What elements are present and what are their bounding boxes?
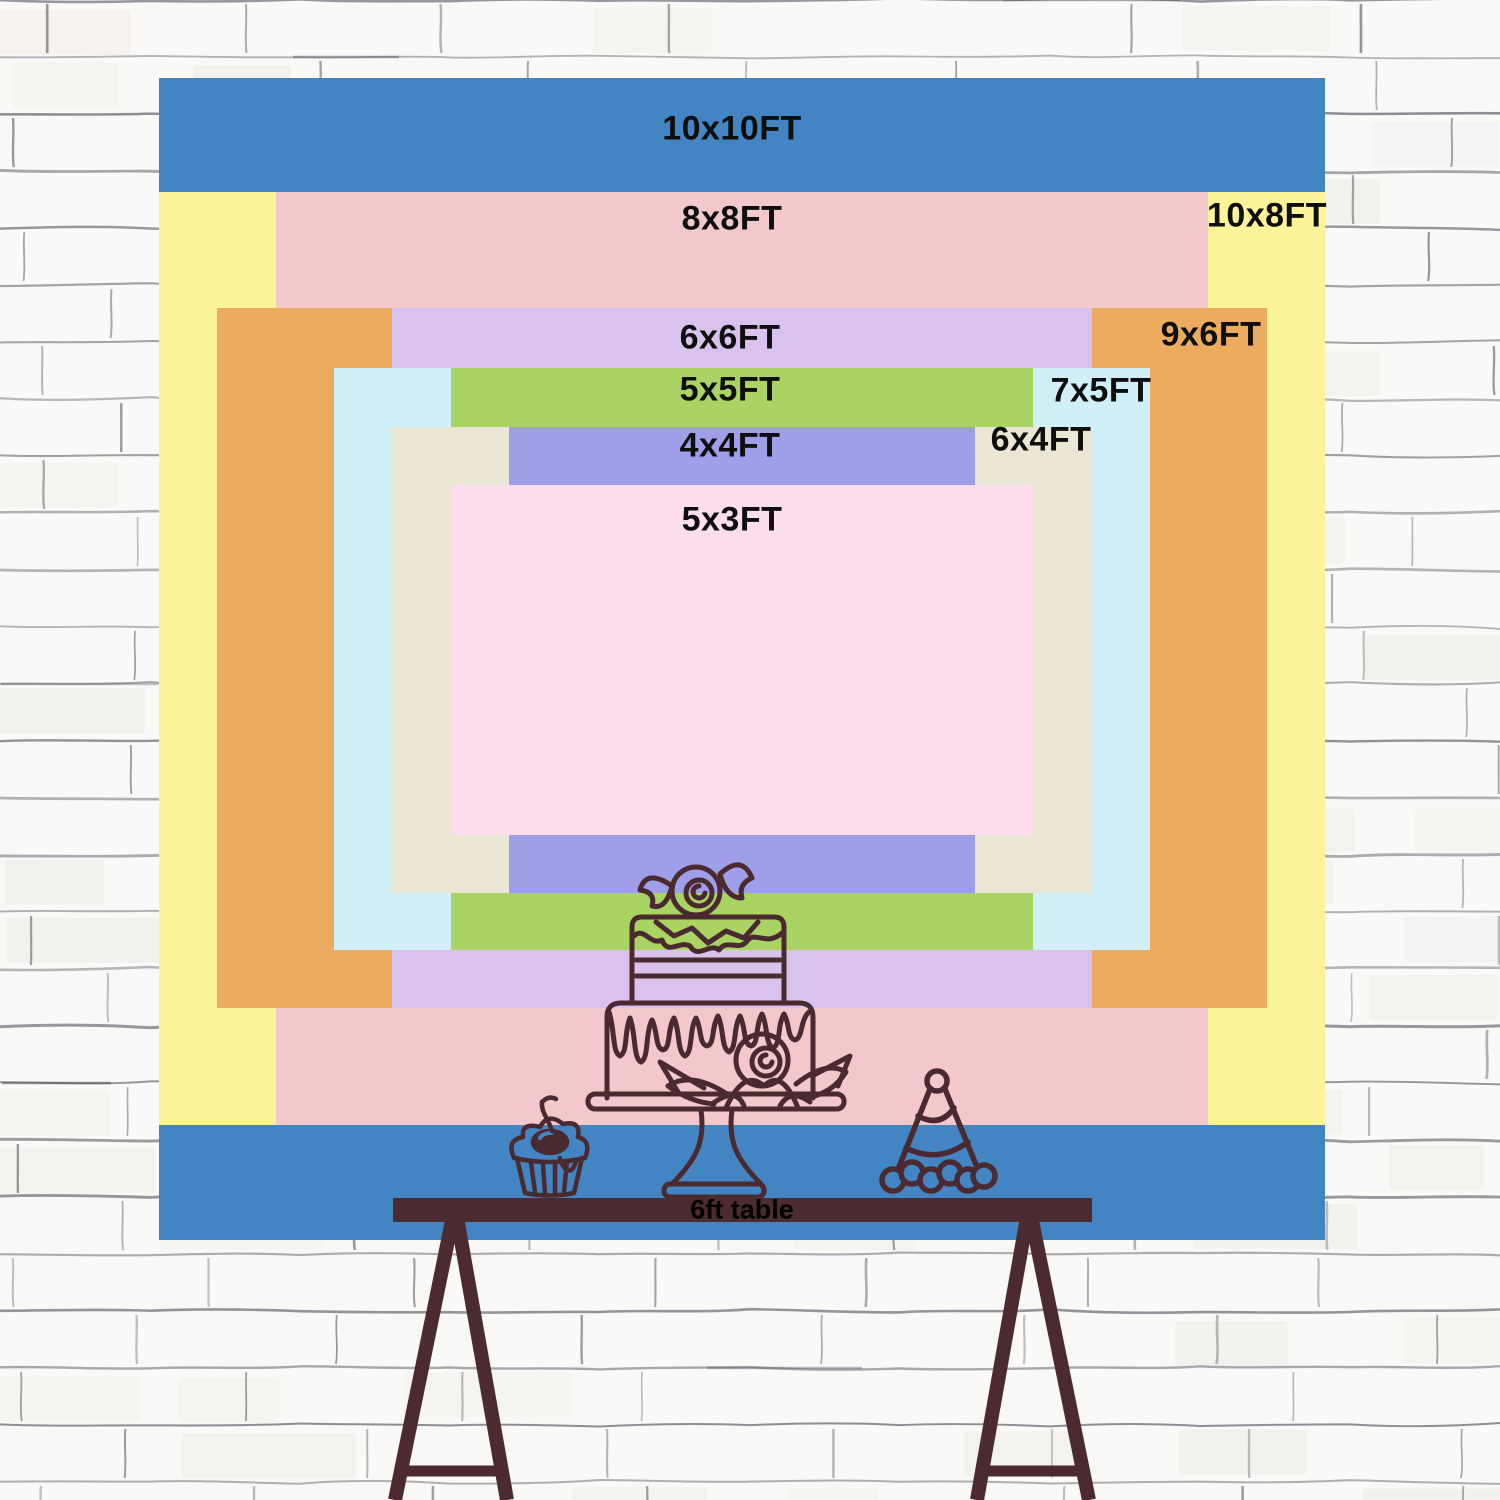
party-hat-line-art: [882, 1071, 995, 1191]
backdrop-size-chart-image: 10x10FT10x8FT8x8FT9x6FT6x6FT7x5FT5x5FT6x…: [0, 0, 1500, 1500]
right-trestle-legs: [977, 1206, 1089, 1500]
table-label: 6ft table: [690, 1195, 794, 1226]
tiered-cake-line-art: [588, 865, 850, 1197]
cupcake-with-cherry-line-art: [511, 1098, 587, 1196]
left-trestle-legs: [395, 1206, 507, 1500]
table-and-cake-art: [0, 0, 1500, 1500]
